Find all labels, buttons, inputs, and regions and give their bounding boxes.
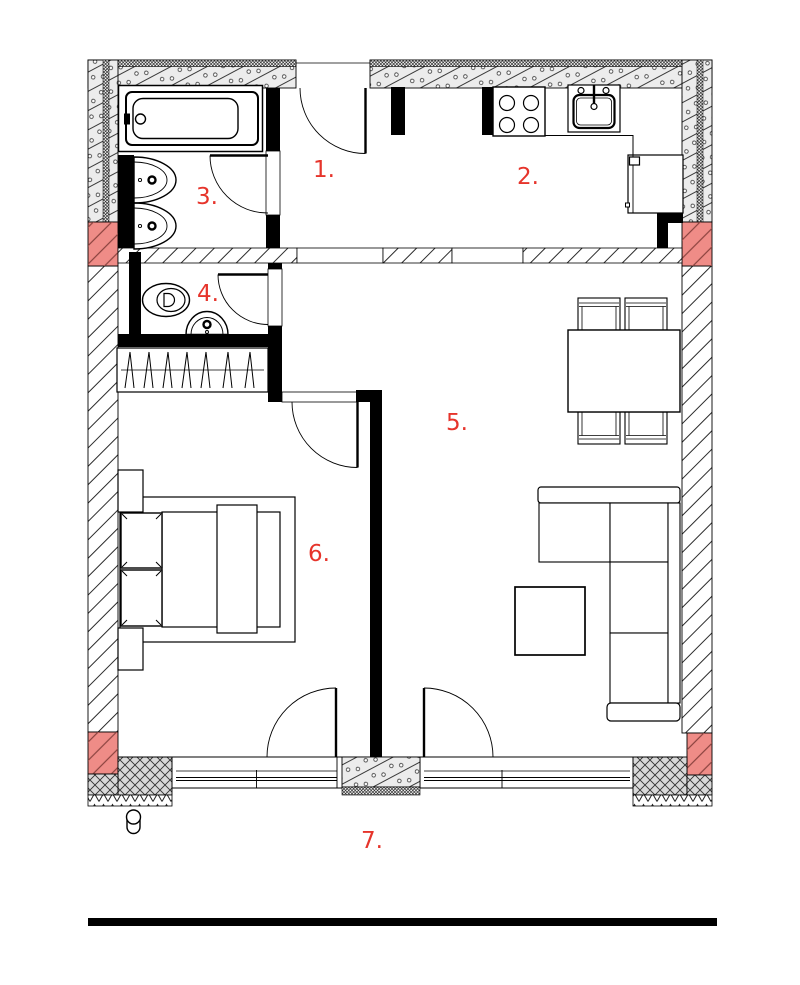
room-label-7: 7. [361,828,383,854]
nightstand [118,628,143,670]
wc-door-frame [268,269,282,326]
room-label-3: 3. [196,184,218,210]
pier-bottom-left-2 [88,774,118,795]
kitchen-stub-right [482,87,493,135]
top-wall-left-insulation [88,60,296,67]
bathtub [119,86,263,152]
stove [493,87,545,136]
column-marker-bottom-right [687,733,712,775]
dining-table [568,330,680,412]
wc-partition [129,252,141,347]
floor-plan-page: 1. 2. 3. 4. 5. 6. 7. [0,0,800,985]
bath-door-frame [266,151,280,215]
window-pier [342,757,420,787]
nightstand [118,470,143,512]
kitchen-sink [568,85,620,132]
left-wall-insulation [103,60,109,222]
bed [118,470,295,670]
column-marker-top-right [682,222,712,266]
wc-door [218,275,268,325]
chair [578,298,620,330]
room-label-5: 5. [446,410,468,436]
bedroom-balcony-door [267,688,336,757]
corridor-wall [268,326,282,402]
passage-kitchen-living [452,248,523,263]
bedroom-door-head [282,392,358,402]
room-label-1: 1. [313,157,335,183]
countertop-edge [545,136,633,156]
bedroom-door [292,402,358,468]
plumbing-wall [118,155,134,248]
pier-bottom-left-base [88,795,172,806]
pillow [121,513,162,568]
room-label-6: 6. [308,541,330,567]
living-window [424,771,630,781]
bathroom-door [210,156,268,214]
washbasin-double [134,157,176,249]
entrance-door [300,88,366,154]
window-pier-insulation [342,787,420,795]
floor-plan: 1. 2. 3. 4. 5. 6. 7. [0,0,800,985]
pillow [121,570,162,626]
toilet [143,284,190,317]
passage-hall-living [297,248,383,263]
wardrobe [117,348,268,392]
column-marker-top-left [88,222,118,266]
blanket [217,505,257,633]
bathtub-faucet [125,114,130,124]
downpipe [127,810,141,834]
pier-bottom-right-base [633,795,712,806]
right-wall-insulation [697,60,703,222]
washbasin-small [186,312,228,335]
coffee-table [515,587,585,655]
chair [625,412,667,444]
column-marker-bottom-left [88,732,118,774]
pier-bottom-right [633,757,687,795]
kitchen-stub-left [391,87,405,135]
fridge [626,155,684,213]
bedroom-living-wall [370,390,382,757]
chair [625,298,667,330]
right-wall-lower [682,266,712,733]
top-wall-right-insulation [370,60,712,67]
wc-bottom-wall [118,334,272,347]
left-wall-lower [88,266,118,732]
chair [578,412,620,444]
sofa-armrest [607,703,680,721]
living-balcony-door [424,688,493,757]
dining-set [568,298,680,444]
pier-bottom-left [118,757,172,795]
room-label-4: 4. [197,281,219,307]
bottom-rule [88,918,717,926]
mid-wall-band [118,248,682,263]
room-label-2: 2. [517,164,539,190]
window-band [118,688,682,795]
pier-bottom-right-2 [687,775,712,795]
